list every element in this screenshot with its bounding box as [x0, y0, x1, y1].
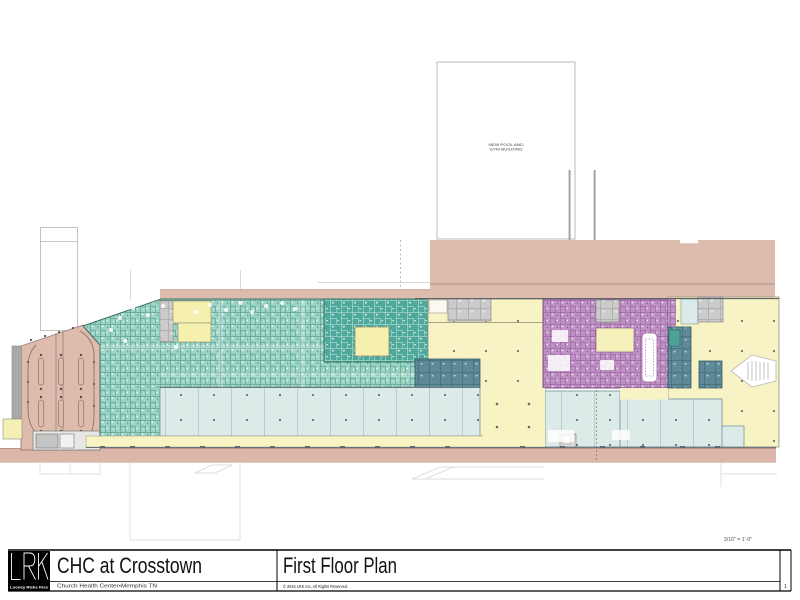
svg-text:GYM BUILDING: GYM BUILDING	[490, 148, 523, 152]
svg-text:First Floor Plan: First Floor Plan	[283, 553, 397, 578]
svg-text:CHC at Crosstown: CHC at Crosstown	[57, 553, 202, 578]
svg-text:© 2016 LRK Inc, All Rights Res: © 2016 LRK Inc, All Rights Reserved.	[283, 583, 348, 590]
svg-text:3/16" = 1'-0": 3/16" = 1'-0"	[724, 537, 752, 543]
svg-text:1: 1	[784, 584, 787, 590]
svg-text:Church Health Center•Memphis T: Church Health Center•Memphis TN	[57, 584, 157, 590]
svg-text:NEW POOL AND: NEW POOL AND	[489, 143, 525, 147]
svg-text:Looney Ricks Kiss: Looney Ricks Kiss	[10, 585, 48, 589]
